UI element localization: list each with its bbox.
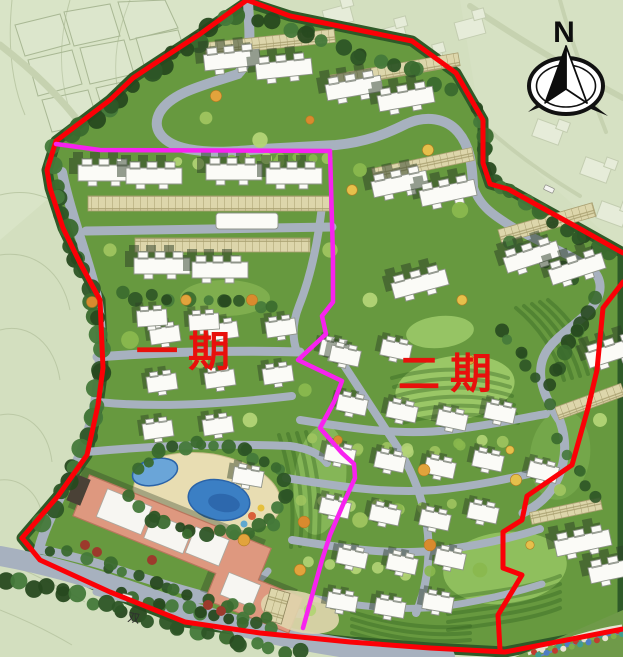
flowering-tree [181,295,192,306]
site-plan-canvas: 一期 二期 双 N [0,0,623,657]
red-leaf-tree [80,540,90,550]
tree [271,462,282,473]
flowering-tree [457,295,467,305]
tree [214,525,226,537]
tree [267,518,280,531]
tree [588,291,602,305]
flowering-tree [418,464,430,476]
tree [444,83,458,97]
red-leaf-tree [147,555,157,565]
tree [117,567,127,577]
tree [575,466,586,477]
tree [45,546,55,556]
tree [196,440,206,450]
flowering-tree [510,474,521,485]
tree [166,599,179,612]
tree [103,243,116,256]
tree [150,576,164,590]
flowering-tree [210,90,221,101]
flowering-tree [306,116,314,124]
corner-planting [602,635,608,641]
tree [544,398,556,410]
tree [80,552,93,565]
tree [452,202,468,218]
tree [374,55,388,69]
tree [387,58,401,72]
tree [204,295,214,305]
tree [298,383,311,396]
tree [10,572,27,589]
tree [350,50,366,66]
red-leaf-tree [216,606,226,616]
tree [404,61,421,78]
tree [315,34,328,47]
flowering-tree [294,564,305,575]
flowering-tree [506,446,514,454]
tree [589,491,601,503]
tree [175,522,185,532]
tree [516,347,528,359]
tree [554,484,566,496]
tree [453,438,463,448]
tree [251,14,264,27]
tree [146,289,158,301]
tree [303,556,314,567]
tree [167,584,179,596]
tree [199,527,214,542]
tree [132,463,144,475]
play-equipment [248,512,256,520]
tree [233,295,245,307]
tree [87,598,100,611]
tree [402,446,414,458]
flowering-tree [424,539,436,551]
tree [222,440,236,454]
tree [153,443,165,455]
tree [473,563,488,578]
tree [144,457,154,467]
low-rise-slab [216,213,278,229]
tree [38,578,54,594]
tree [264,12,281,29]
tree [181,589,192,600]
tree [593,413,607,427]
tree [104,556,118,570]
flowering-tree [238,534,250,546]
tree [447,499,457,509]
tree [519,359,531,371]
tree [132,500,145,513]
tree [296,495,307,506]
compass-north-label: N [553,16,575,49]
red-leaf-tree [92,547,102,557]
tree [353,163,367,177]
tree [297,26,314,43]
corner-planting [611,633,617,639]
tree [277,473,291,487]
flowering-tree [422,144,433,155]
tree [112,601,124,613]
tree [223,614,234,625]
tree [166,441,178,453]
tree [325,559,336,570]
corner-planting [594,637,600,643]
tree [61,545,72,556]
tree [161,294,172,305]
tree [133,570,144,581]
tree [237,617,249,629]
tree [551,433,563,445]
red-leaf-tree [203,600,213,610]
tree [284,23,299,38]
tree [363,293,378,308]
tree [580,480,591,491]
tree [307,433,317,443]
corner-planting [586,639,592,645]
tree [271,501,284,514]
tree [232,637,247,652]
phase1-label: 一期 [136,328,240,375]
site-plan: 一期 二期 双 N [0,0,623,657]
phase2-label: 二期 [398,350,502,397]
tree [562,450,573,461]
tree [266,301,278,313]
tree [259,456,270,467]
corner-planting [552,648,558,654]
tree [262,642,274,654]
flowering-tree [246,294,257,305]
tree [141,615,154,628]
tree [219,295,232,308]
corner-planting [560,646,566,652]
play-equipment [241,521,248,528]
tree [251,637,263,649]
tree [116,286,129,299]
tree [278,490,292,504]
tree [200,112,213,125]
road-name-label: 双 [127,610,141,626]
tree [170,621,184,635]
tree [322,242,337,257]
tree [497,436,509,448]
tree [543,378,556,391]
tree [530,372,540,382]
flowering-tree [298,516,310,528]
tree [336,39,352,55]
flowering-tree [87,297,98,308]
play-equipment [258,505,265,512]
tree [250,617,262,629]
low-rise-slabs [216,213,278,229]
flowering-tree [347,185,358,196]
parking-strip [88,196,330,211]
tree [252,132,267,147]
tree [424,566,435,577]
corner-planting [577,642,583,648]
tree [352,512,368,528]
tree [56,583,69,596]
tree [243,413,258,428]
corner-planting [569,644,575,650]
corner-planting [544,650,550,656]
tree [69,585,87,603]
road [86,227,332,231]
tree [502,335,512,345]
tree [571,324,584,337]
tree [145,514,160,529]
tree [549,363,562,376]
flowering-tree [526,541,534,549]
tree [557,345,573,361]
tree [208,441,219,452]
tree [122,490,134,502]
